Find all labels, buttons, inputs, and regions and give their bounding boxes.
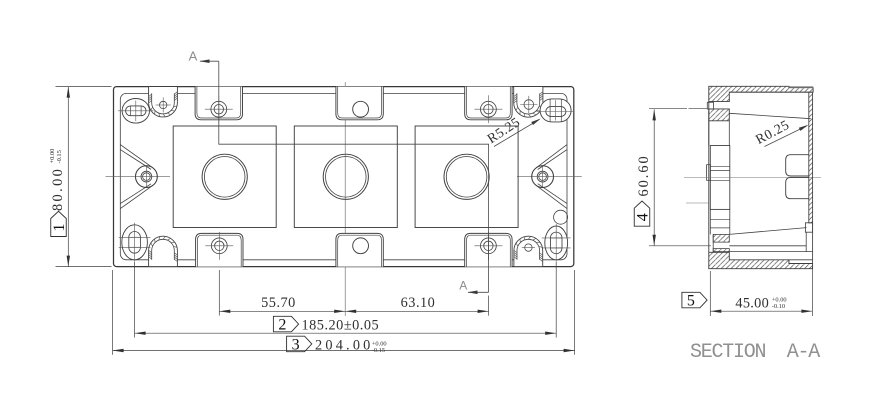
svg-text:SECTION A-A: SECTION A-A — [690, 341, 820, 364]
svg-text:-0.15: -0.15 — [56, 150, 63, 163]
svg-text:80.00: 80.00 — [50, 167, 66, 211]
svg-text:A: A — [459, 279, 467, 293]
svg-text:204.00: 204.00 — [315, 337, 374, 353]
svg-text:5: 5 — [687, 293, 695, 310]
svg-text:3: 3 — [292, 337, 300, 354]
svg-text:A: A — [189, 48, 198, 63]
svg-text:-0.10: -0.10 — [772, 303, 785, 310]
svg-text:1: 1 — [51, 224, 68, 232]
svg-text:55.70: 55.70 — [261, 295, 296, 311]
svg-text:185.20±0.05: 185.20±0.05 — [302, 318, 380, 334]
svg-text:45.00: 45.00 — [735, 295, 769, 311]
svg-text:2: 2 — [278, 317, 286, 334]
svg-text:60.60: 60.60 — [636, 154, 652, 196]
svg-text:-0.15: -0.15 — [372, 347, 385, 354]
svg-text:+0.00: +0.00 — [49, 149, 56, 164]
svg-text:63.10: 63.10 — [401, 295, 436, 311]
svg-text:4: 4 — [635, 213, 652, 221]
